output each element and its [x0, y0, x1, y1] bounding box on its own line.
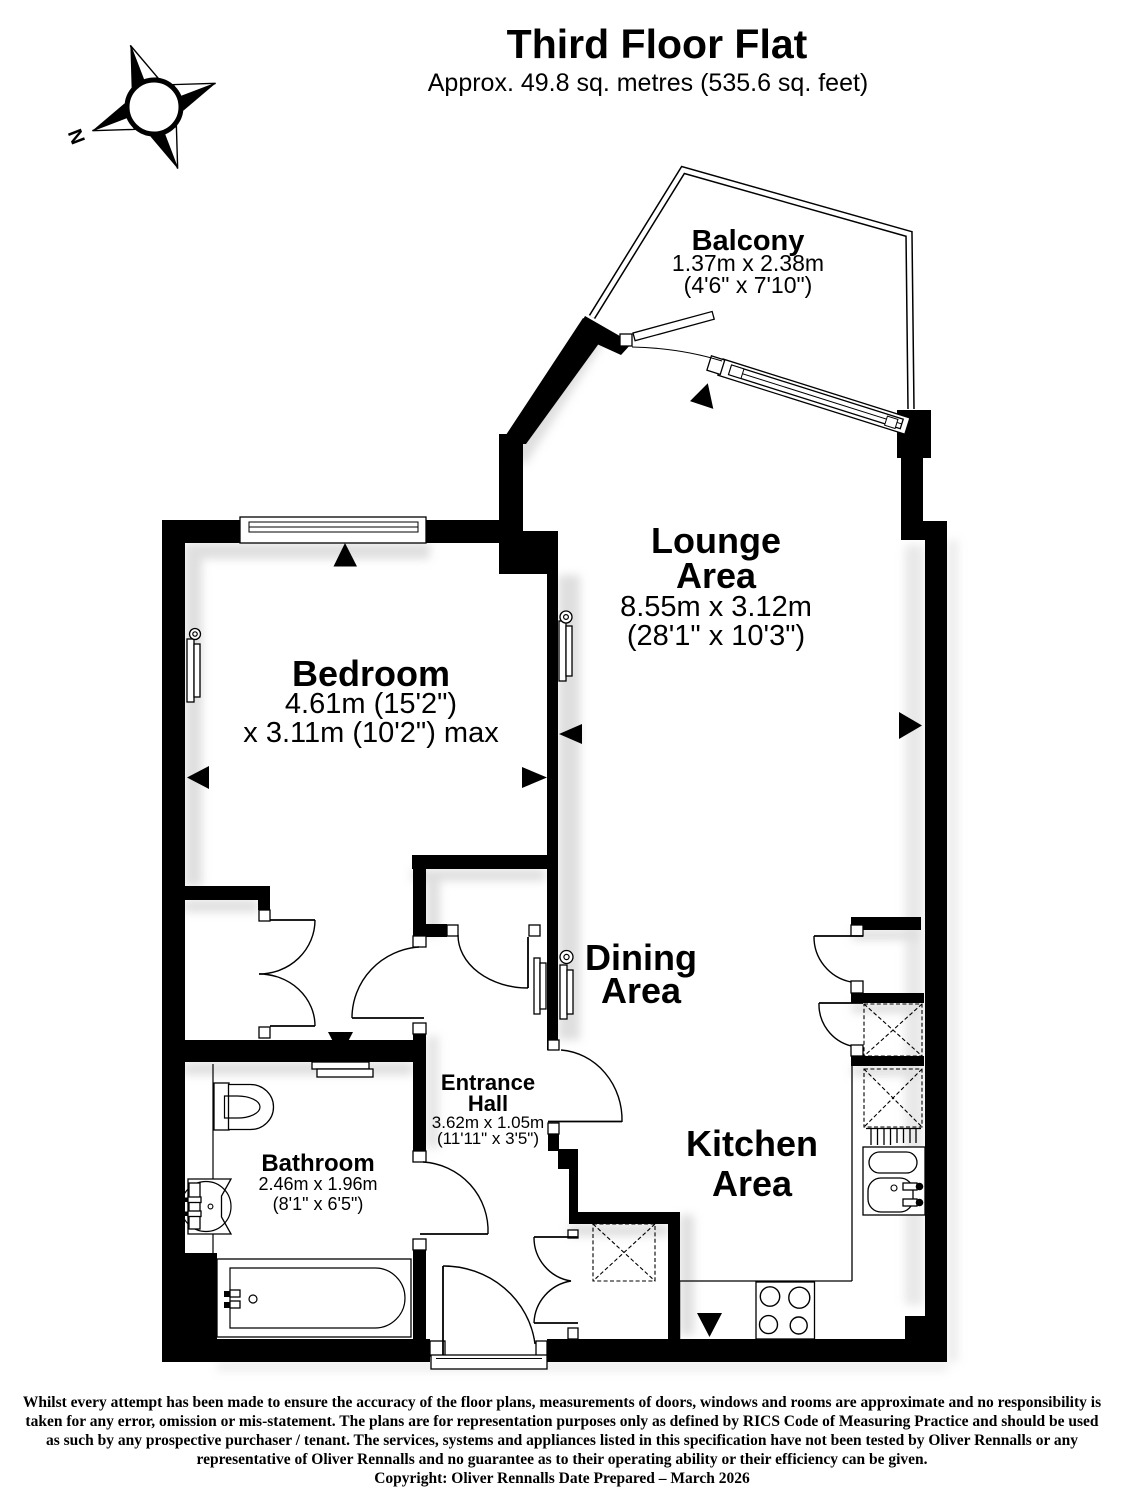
- svg-text:Area: Area: [712, 1163, 793, 1204]
- svg-text:taken for any error, omission: taken for any error, omission or mis-sta…: [25, 1413, 1099, 1430]
- svg-text:(8'1" x 6'5"): (8'1" x 6'5"): [273, 1194, 364, 1214]
- svg-text:Copyright: Oliver Rennalls Dat: Copyright: Oliver Rennalls Date Prepared…: [374, 1470, 750, 1487]
- svg-text:Bathroom: Bathroom: [261, 1150, 374, 1177]
- svg-text:as such by any prospective pur: as such by any prospective purchaser / t…: [46, 1432, 1078, 1449]
- svg-text:Area: Area: [601, 970, 682, 1011]
- svg-text:Approx. 49.8 sq. metres (535.6: Approx. 49.8 sq. metres (535.6 sq. feet): [428, 69, 869, 97]
- svg-text:Whilst every attempt has been: Whilst every attempt has been made to en…: [23, 1394, 1101, 1411]
- svg-text:Third Floor Flat: Third Floor Flat: [507, 21, 808, 67]
- svg-text:representative of Oliver Renna: representative of Oliver Rennalls and no…: [196, 1451, 927, 1468]
- svg-text:Kitchen: Kitchen: [686, 1123, 818, 1164]
- svg-text:(11'11" x 3'5"): (11'11" x 3'5"): [437, 1129, 539, 1148]
- svg-text:4.61m (15'2"): 4.61m (15'2"): [285, 688, 457, 720]
- svg-text:8.55m x 3.12m: 8.55m x 3.12m: [620, 591, 812, 623]
- svg-text:(28'1" x 10'3"): (28'1" x 10'3"): [627, 620, 805, 652]
- svg-text:(4'6" x 7'10"): (4'6" x 7'10"): [684, 272, 813, 298]
- svg-text:x 3.11m (10'2") max: x 3.11m (10'2") max: [243, 717, 499, 749]
- svg-text:Area: Area: [676, 555, 757, 596]
- svg-text:2.46m x 1.96m: 2.46m x 1.96m: [258, 1174, 377, 1194]
